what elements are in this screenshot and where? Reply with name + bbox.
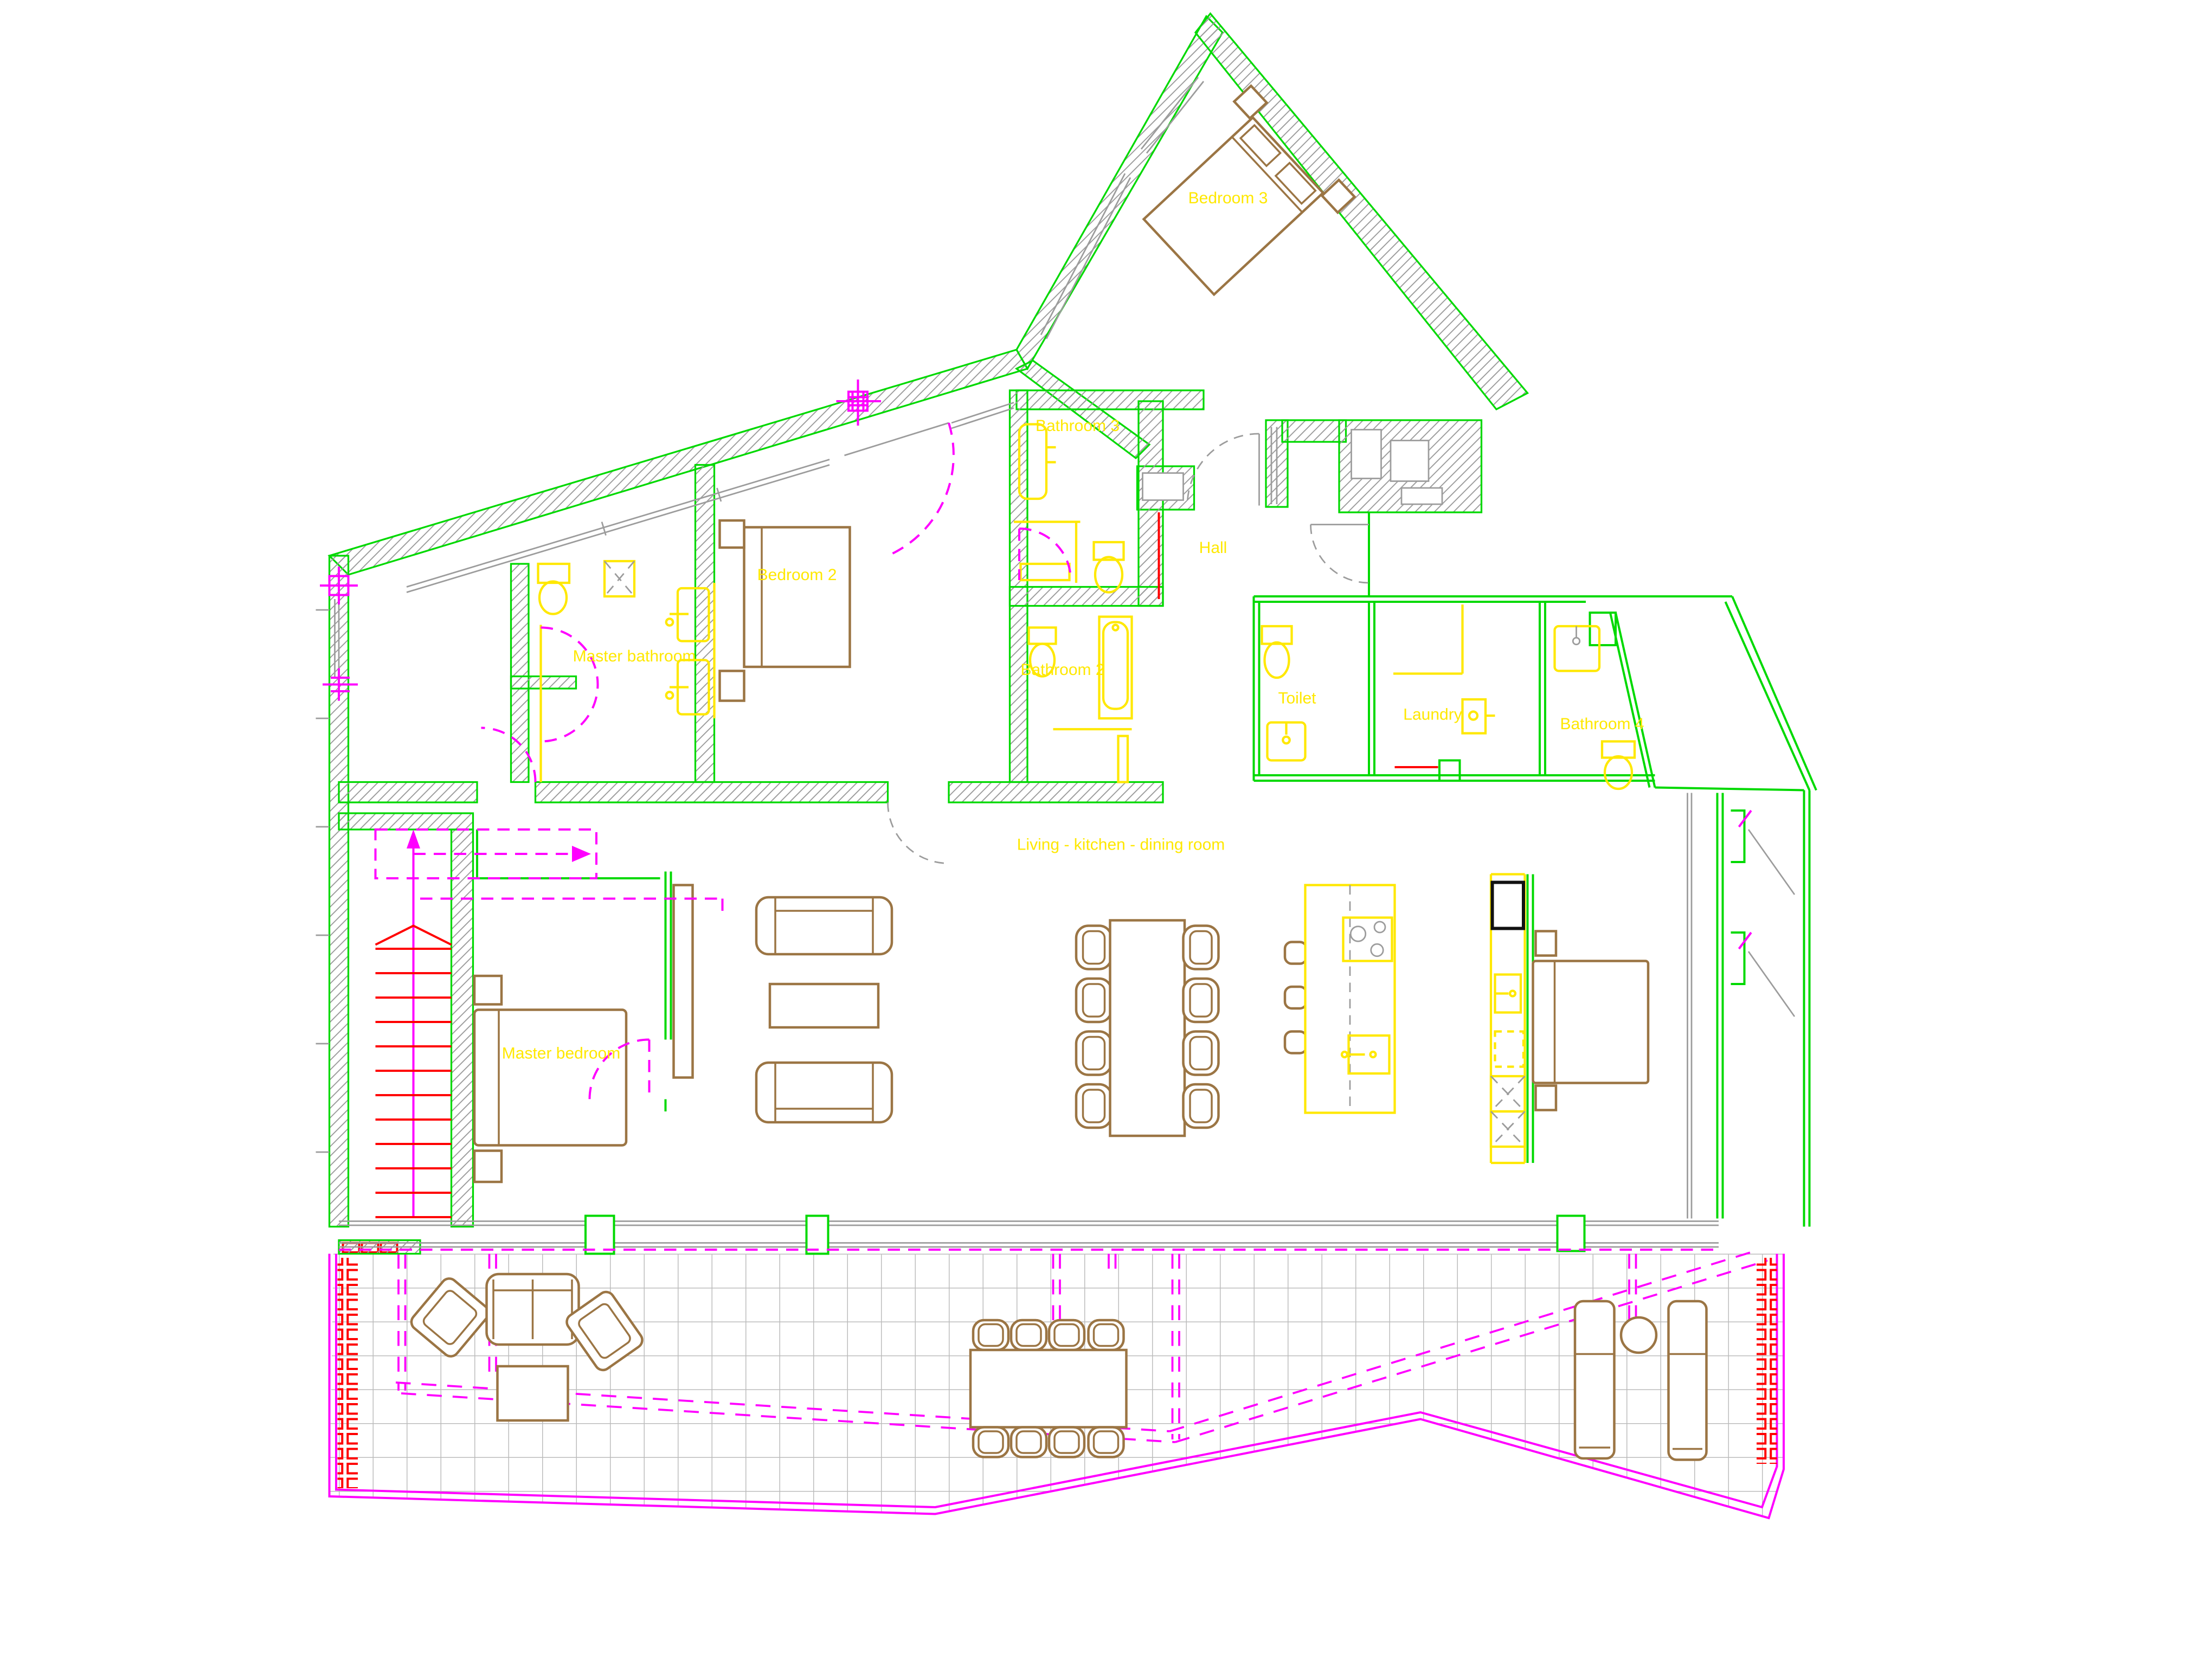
wall-right-inner: [1718, 793, 1723, 1219]
wall-toilet-laundry: [1369, 602, 1374, 775]
wall-bathroom3-bathroom2: [1010, 587, 1163, 606]
wall-toilet-left: [1254, 596, 1259, 781]
terrace-dining-table: [970, 1350, 1127, 1427]
wall-living-top-c: [949, 782, 1163, 803]
bathroom3-toilet: [1094, 542, 1124, 593]
terrace-sofa: [487, 1274, 579, 1345]
dining-chair: [1184, 1032, 1219, 1075]
room-label-master-bathroom: Master bathroom: [573, 647, 696, 665]
room-label-living-kitchen-dining: Living - kitchen - dining room: [1017, 836, 1225, 854]
dining-table-indoor: [1110, 921, 1185, 1136]
furniture: [474, 86, 1648, 1182]
vent-lines: [1748, 829, 1795, 1017]
sun-lounger-1: [1575, 1301, 1615, 1458]
sun-lounger-2: [1669, 1301, 1707, 1460]
facade-column: [1558, 1216, 1585, 1251]
hall-door-arc: [1187, 434, 1259, 506]
bed-master-bedroom: [474, 976, 626, 1182]
oven-appliance: [1493, 883, 1524, 929]
kitchen-tall-units: [1491, 874, 1525, 1163]
entry-door-leaf: [845, 423, 949, 455]
laundry-corner-box: [1439, 761, 1460, 781]
sofa-living-top: [756, 897, 892, 954]
terrace-chair: [973, 1320, 1008, 1350]
terrace-chair: [1049, 1427, 1084, 1457]
entry-door-arc: [888, 423, 954, 556]
lounger-side-table: [1621, 1317, 1656, 1353]
terrace-chair: [1049, 1320, 1084, 1350]
laundry-counter: [1393, 605, 1463, 674]
wall-outer-slant-right: [1726, 596, 1817, 790]
wall-laundry-bathroom4: [1540, 602, 1545, 775]
dining-chair: [1184, 1084, 1219, 1128]
wall-bathroom4-slant-inner: [1610, 613, 1655, 788]
laundry-washer: [1463, 699, 1495, 734]
glazing-right: [1688, 793, 1692, 1219]
stair-walk-line: [407, 829, 420, 1217]
wall-living-top-a: [339, 782, 477, 803]
window-shutter-bracket: [1731, 811, 1745, 984]
wall-sloped-top-left: [330, 350, 1028, 575]
dining-chair: [1076, 979, 1111, 1022]
room-label-bathroom-4: Bathroom 4: [1560, 715, 1644, 733]
wall-masterbath-inner-v: [511, 564, 529, 782]
terrace-chair: [1089, 1427, 1124, 1457]
bathroom2-cabinet: [1118, 736, 1128, 782]
room-label-bathroom-3: Bathroom 3: [1036, 417, 1120, 435]
bedroom2-door-arc: [888, 802, 949, 864]
bar-stools: [1285, 942, 1307, 1053]
tv-panel: [674, 885, 693, 1078]
facade-column: [807, 1216, 828, 1254]
pergola-ladder-left: [338, 1258, 358, 1488]
room-label-toilet: Toilet: [1278, 690, 1316, 708]
wall-service-block-top: [1254, 596, 1733, 602]
room-label-bedroom-3: Bedroom 3: [1188, 189, 1268, 207]
masterbath-toilet: [538, 564, 570, 614]
dining-chair: [1076, 1084, 1111, 1128]
room-label-hall: Hall: [1199, 539, 1227, 557]
dining-chair: [1076, 1032, 1111, 1075]
wall-living-top-b: [536, 782, 888, 803]
room-label-bathroom-2: Bathroom 2: [1020, 661, 1104, 679]
wall-masterbed-partition: [666, 872, 671, 1112]
toilet-room-wc: [1262, 626, 1292, 678]
room-label-master-bedroom: Master bedroom: [502, 1045, 620, 1063]
masterbath-shower-tray: [605, 561, 634, 596]
hall-living-door-arc: [1311, 525, 1369, 583]
wall-masterbath-bedroom2: [696, 465, 715, 782]
bed-bedroom-2: [720, 520, 850, 701]
dining-set-indoor: [1076, 921, 1219, 1136]
bed-right-bedroom: [1533, 931, 1649, 1110]
dining-chair: [1184, 979, 1219, 1022]
dining-chair: [1076, 926, 1111, 969]
terrace-chair: [1089, 1320, 1124, 1350]
room-label-laundry: Laundry: [1403, 706, 1462, 724]
wall-masterbath-inner-h: [511, 677, 576, 689]
dimension-ticks: [316, 610, 330, 1152]
stair-upper-flight: [376, 829, 597, 878]
wall-right-outer: [1804, 790, 1810, 1227]
terrace-chair: [973, 1427, 1008, 1457]
terrace-chair: [1011, 1427, 1046, 1457]
terrace-dining-set: [970, 1320, 1127, 1457]
coffee-table-living: [770, 984, 878, 1027]
bathroom4-basin: [1555, 626, 1600, 671]
facade-column: [586, 1216, 614, 1254]
wall-stair-right: [452, 829, 473, 1227]
wall-right-zone-top: [1655, 788, 1804, 790]
wall-wing-bottom-b: [1282, 420, 1346, 442]
room-label-bedroom-2: Bedroom 2: [757, 566, 837, 584]
sliding-door-tracks: [339, 1221, 1719, 1248]
kitchen-island: [1306, 885, 1395, 1113]
pergola-ladder-right: [1757, 1258, 1777, 1464]
wall-wing-bottom-a: [1017, 390, 1204, 409]
dining-chair: [1184, 926, 1219, 969]
terrace-coffee-table: [498, 1366, 568, 1420]
toilet-room-basin: [1268, 723, 1306, 761]
floor-plan-canvas: Bedroom 3 Bathroom 3 Hall Bedroom 2 Mast…: [0, 0, 2212, 1659]
sofa-living-bottom: [756, 1063, 892, 1122]
wall-stair-top: [339, 813, 473, 829]
terrace-chair: [1011, 1320, 1046, 1350]
terrace: [330, 1243, 1784, 1519]
